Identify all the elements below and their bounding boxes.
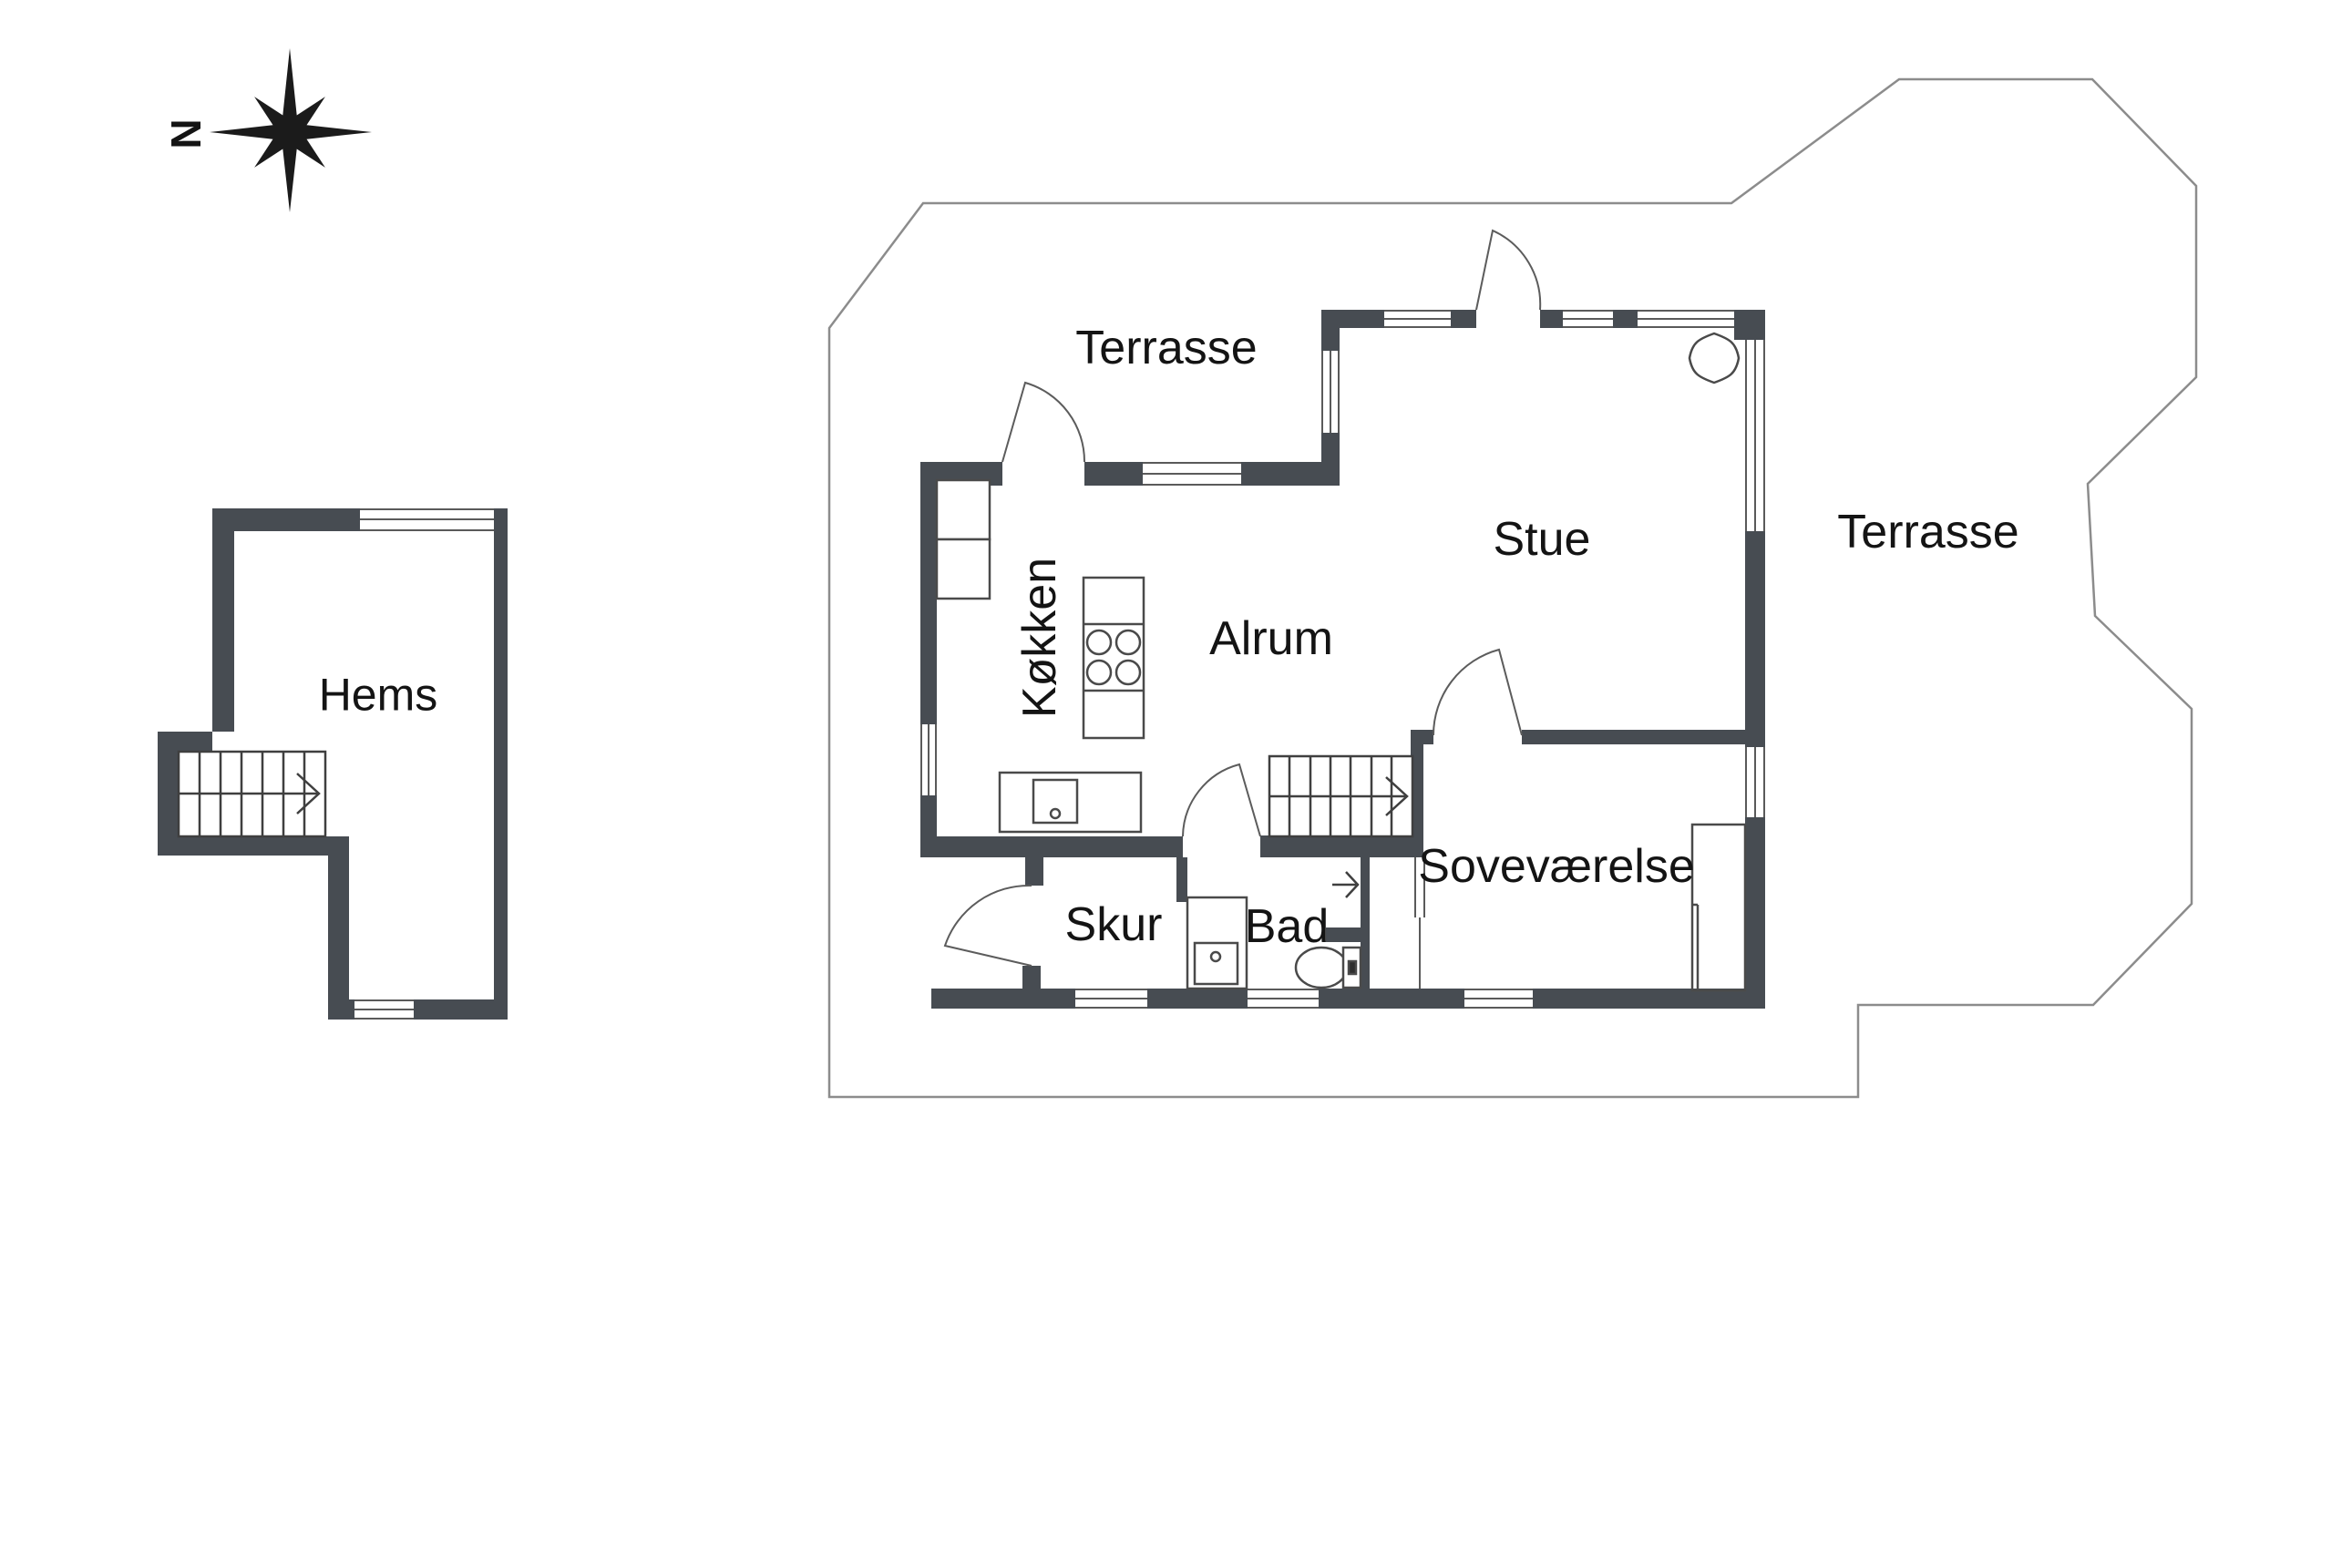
wall-bath-stub [1326,927,1370,942]
room-label-bath: Bad [1245,900,1330,953]
wall-shed-west-upper [1025,857,1043,886]
wall-stue-top-2 [1451,310,1476,328]
room-label-hems: Hems [319,670,438,721]
north-arrow-icon: N [162,48,372,212]
room-label-alrum: Alrum [1209,612,1333,665]
wall-east-1 [1745,531,1765,747]
hems-wall-top [212,508,360,531]
wall-east-2 [1745,817,1765,1009]
window [1248,989,1319,1008]
toilet-bowl [1296,948,1347,988]
wall-bottom-4 [1533,989,1765,1009]
wall-stue-top-corner [1734,310,1765,340]
wall-alrum-top-2 [1084,462,1143,486]
door-arc-terrace [1002,383,1084,462]
hems-wall-bottom-left [328,999,354,1020]
wall-bottom-3 [1319,989,1464,1009]
window [360,509,494,530]
wall-west-lower [920,795,937,836]
window [1746,340,1764,531]
wall-shed-bath [1176,857,1187,902]
door-arc-shed [945,886,1032,966]
toilet [1296,948,1361,988]
window [1563,311,1613,327]
north-star-shape [210,48,372,212]
staircase-main [1269,756,1412,836]
floor-plan-page: N [0,0,2352,1568]
kitchen-counter-lower [937,539,990,599]
small-arrow-icon [1332,872,1358,897]
stairs [179,752,1412,897]
north-label: N [162,118,210,149]
door-arc-bath [1183,764,1260,836]
hems-wall-right [494,508,508,1020]
wall-stue-top-1 [1321,310,1384,328]
room-label-terrasse-right: Terrasse [1837,506,2018,559]
window [1638,311,1734,327]
floor-plan: N [0,0,2352,1568]
wall-stue-top-3 [1540,310,1563,328]
wall-bottom-2 [1147,989,1248,1009]
walls [158,310,1765,1020]
room-label-terrasse-top: Terrasse [1075,322,1257,374]
kitchen-counter-upper [937,480,990,539]
wall-alrum-south-2 [1260,835,1423,857]
room-label-bedroom: Soveværelse [1418,840,1694,893]
wall-stue-top-4 [1613,310,1638,328]
hems-wall-nook-bottom [158,836,349,856]
kitchen-sink [1033,780,1077,823]
room-label-stue: Stue [1494,513,1591,566]
wall-stue-west-lower [1321,433,1340,486]
wall-bottom-1 [931,989,1075,1009]
wall-shed-west-lower [1022,966,1041,989]
room-label-shed: Skur [1065,898,1163,951]
door-arc-bedroom [1433,650,1522,735]
window [1322,351,1339,433]
hems-wall-bottom-right [414,999,508,1020]
room-label-kitchen: Køkken [1013,558,1066,718]
door-arc-stue [1476,231,1540,310]
window [921,724,936,795]
window [1384,311,1451,327]
wall-bath-east [1361,857,1370,989]
wood-stove [1690,333,1739,383]
kitchen-island [1084,578,1144,738]
wall-alrum-south-1 [920,836,1183,857]
wall-bedroom-top-2 [1522,730,1745,744]
toilet-button [1349,961,1356,974]
window [1143,463,1241,485]
kitchen-sink-counter [1000,773,1141,832]
wall-west-upper [920,462,937,724]
bath-vanity [1187,897,1247,989]
bath-sink [1195,943,1238,984]
window [1075,989,1147,1008]
wardrobe [1692,825,1745,990]
hems-wall-left-upper [212,508,234,732]
hems-wall-left-lower [328,856,349,1020]
window [354,1000,414,1019]
staircase-hems [179,752,325,836]
window [1746,747,1764,817]
window [1464,989,1533,1008]
